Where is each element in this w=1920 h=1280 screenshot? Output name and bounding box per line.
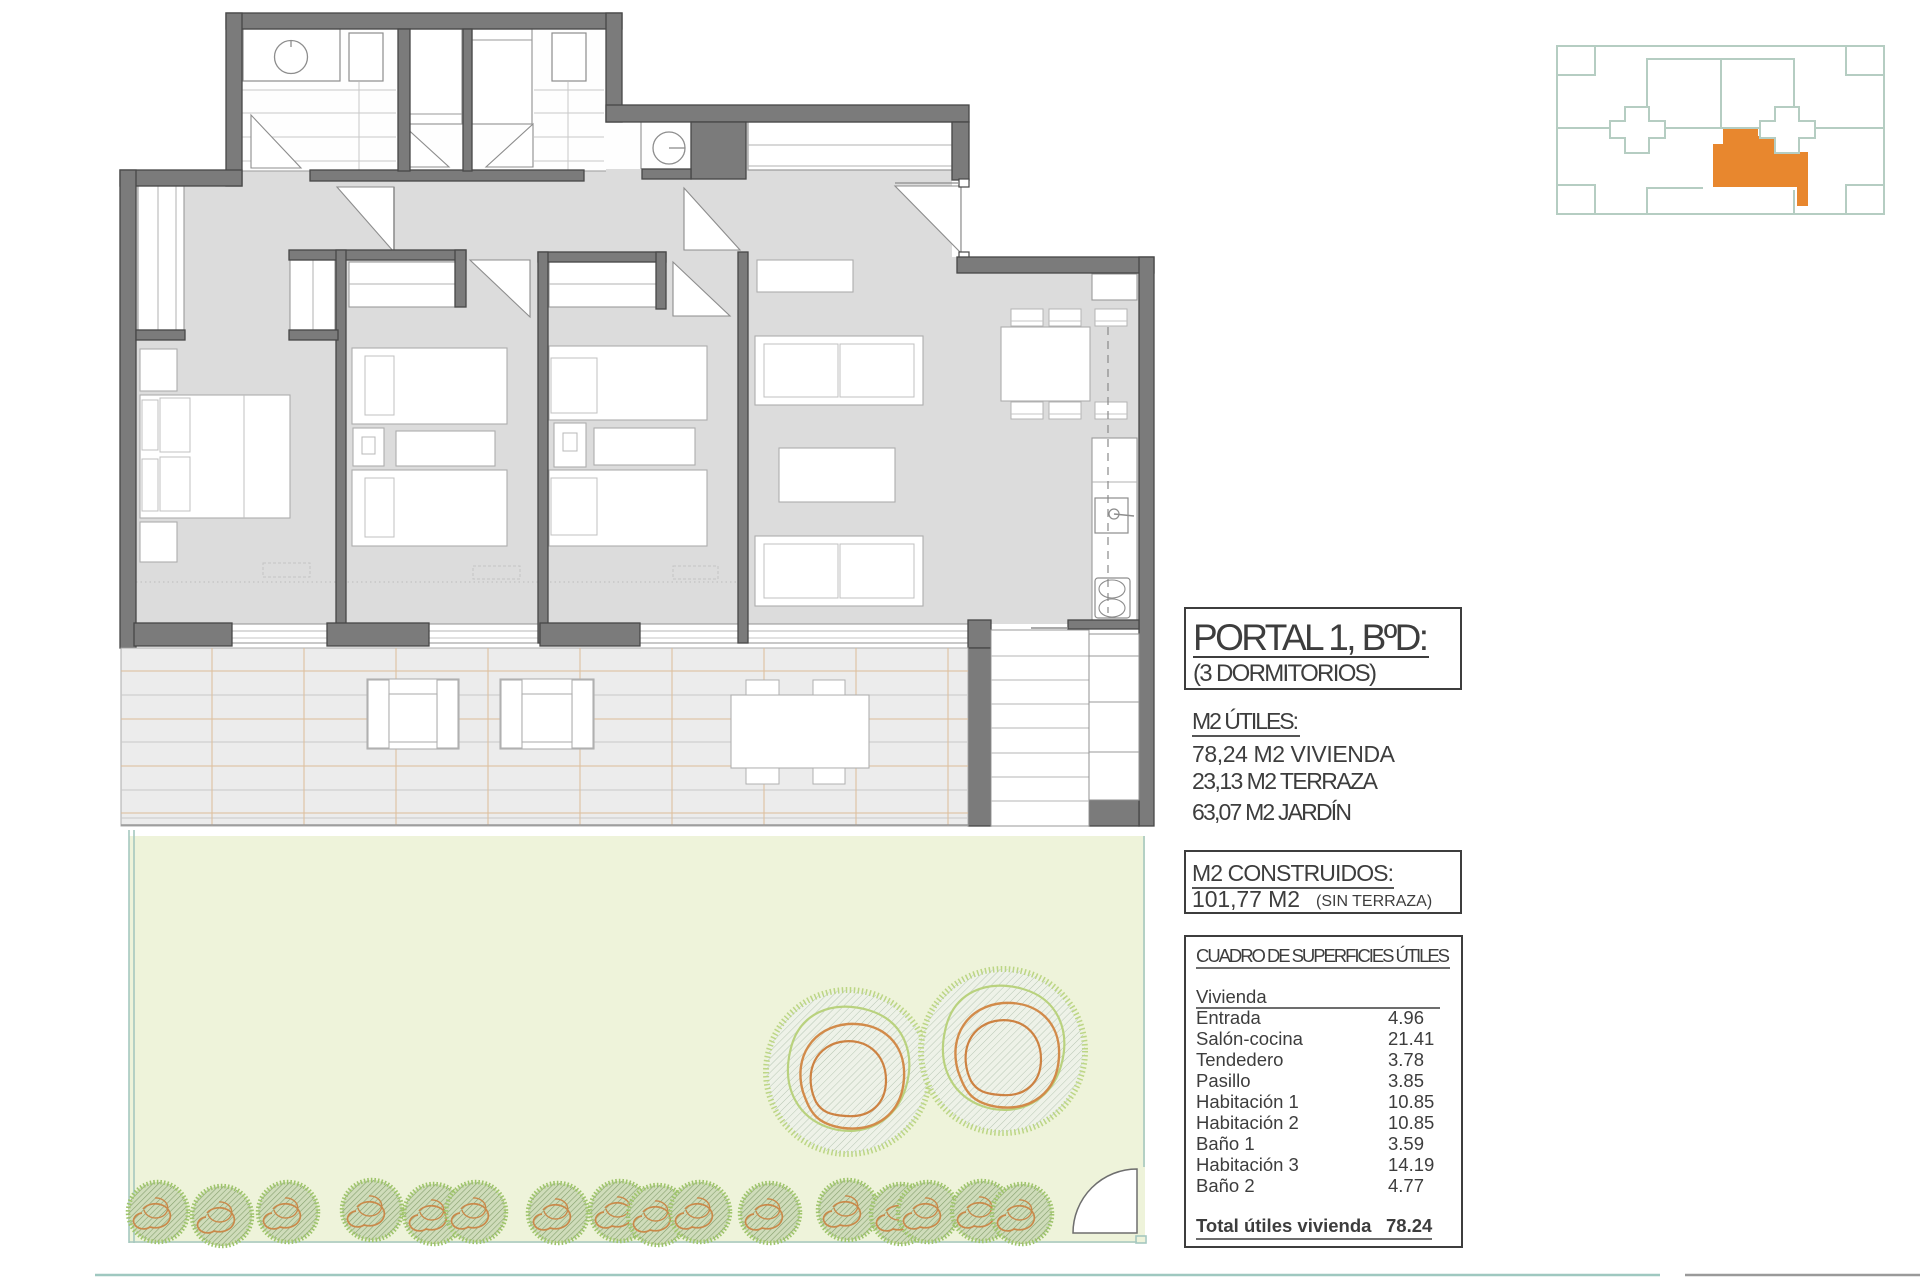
svg-text:78,24 M2 VIVIENDA: 78,24 M2 VIVIENDA — [1192, 741, 1396, 767]
svg-text:78.24: 78.24 — [1386, 1215, 1433, 1236]
svg-text:M2 ÚTILES:: M2 ÚTILES: — [1192, 708, 1299, 734]
svg-text:Salón-cocina: Salón-cocina — [1196, 1028, 1304, 1049]
svg-text:(SIN TERRAZA): (SIN TERRAZA) — [1316, 893, 1432, 910]
svg-text:Habitación 1: Habitación 1 — [1196, 1091, 1299, 1112]
svg-text:Total útiles vivienda: Total útiles vivienda — [1196, 1215, 1372, 1236]
svg-text:CUADRO DE SUPERFICIES ÚTILES: CUADRO DE SUPERFICIES ÚTILES — [1196, 945, 1450, 966]
svg-text:Habitación 3: Habitación 3 — [1196, 1154, 1299, 1175]
svg-text:Pasillo: Pasillo — [1196, 1070, 1251, 1091]
svg-text:63,07 M2 JARDÍN: 63,07 M2 JARDÍN — [1192, 799, 1352, 825]
svg-text:21.41: 21.41 — [1388, 1028, 1434, 1049]
svg-text:Baño 1: Baño 1 — [1196, 1133, 1255, 1154]
svg-text:14.19: 14.19 — [1388, 1154, 1434, 1175]
svg-text:101,77 M2: 101,77 M2 — [1192, 886, 1300, 912]
svg-text:Baño 2: Baño 2 — [1196, 1175, 1255, 1196]
svg-text:3.85: 3.85 — [1388, 1070, 1424, 1091]
svg-text:M2 CONSTRUIDOS:: M2 CONSTRUIDOS: — [1192, 860, 1394, 886]
svg-text:4.77: 4.77 — [1388, 1175, 1424, 1196]
svg-text:Tendedero: Tendedero — [1196, 1049, 1283, 1070]
svg-text:10.85: 10.85 — [1388, 1091, 1434, 1112]
svg-text:Entrada: Entrada — [1196, 1007, 1262, 1028]
svg-text:PORTAL 1, BºD:: PORTAL 1, BºD: — [1193, 617, 1429, 658]
svg-text:4.96: 4.96 — [1388, 1007, 1424, 1028]
svg-text:Vivienda: Vivienda — [1196, 986, 1267, 1007]
svg-text:(3 DORMITORIOS): (3 DORMITORIOS) — [1193, 660, 1377, 687]
svg-text:3.78: 3.78 — [1388, 1049, 1424, 1070]
svg-text:23,13 M2 TERRAZA: 23,13 M2 TERRAZA — [1192, 768, 1379, 794]
svg-text:3.59: 3.59 — [1388, 1133, 1424, 1154]
svg-text:Habitación 2: Habitación 2 — [1196, 1112, 1299, 1133]
svg-text:10.85: 10.85 — [1388, 1112, 1434, 1133]
